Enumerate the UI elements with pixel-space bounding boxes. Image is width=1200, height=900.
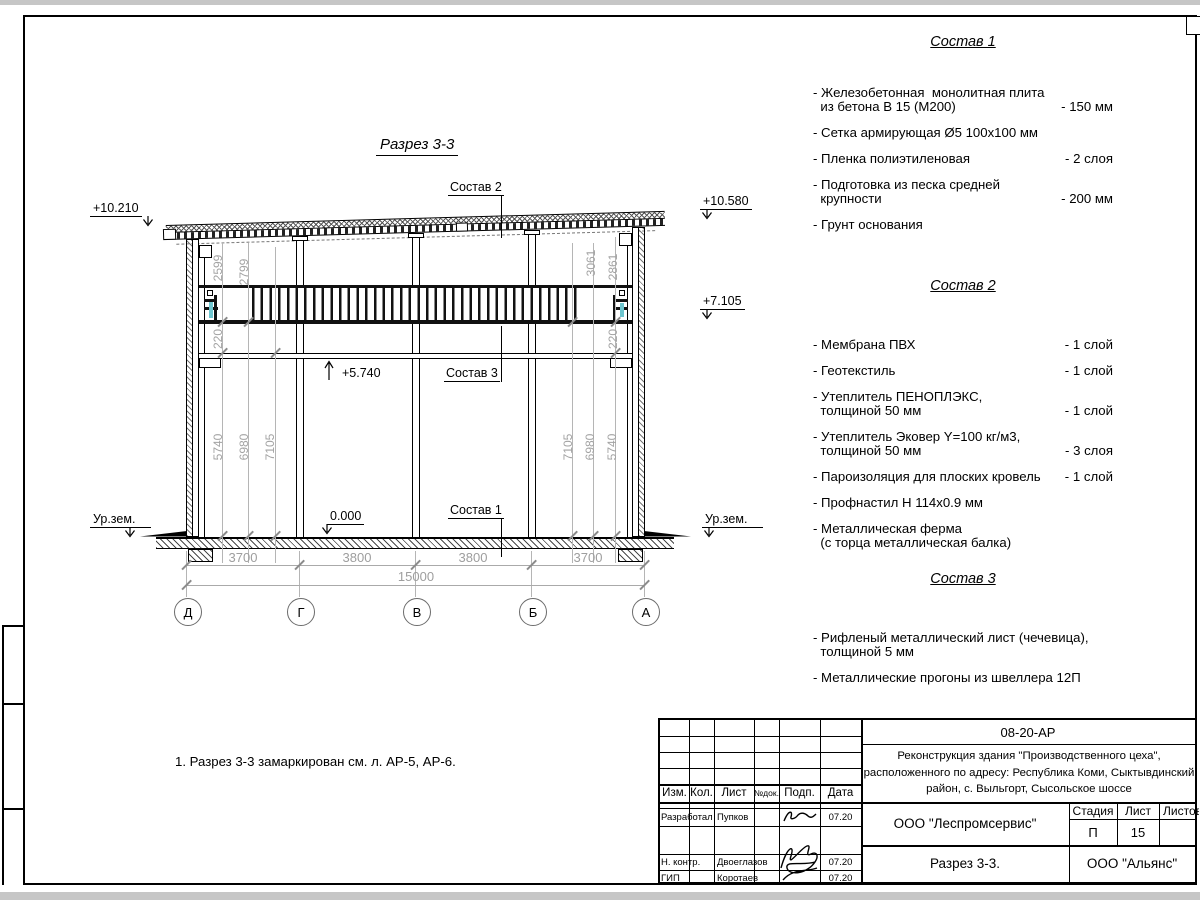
composition-items: - Мембрана ПВХ - 1 слой - Геотекстиль - … bbox=[813, 338, 1113, 550]
dim-line-vertical bbox=[572, 243, 573, 563]
truss-right-accent bbox=[620, 303, 624, 317]
composition-item-text: - Профнастил Н 114х0.9 мм bbox=[813, 496, 1107, 510]
composition-title: Состав 1 bbox=[813, 34, 1113, 50]
ground-wedge-right bbox=[643, 530, 691, 538]
tb-sheets-value bbox=[1159, 819, 1195, 845]
column-truss-to-floor bbox=[528, 324, 536, 353]
truss-right-bracket-box bbox=[619, 290, 625, 296]
composition-items: - Железобетонная монолитная плита из бет… bbox=[813, 86, 1113, 232]
ground-level-mark-left: Ур.зем. bbox=[90, 510, 151, 528]
filing-strip-line bbox=[2, 808, 23, 810]
composition-item: - Рифленый металлический лист (чечевица)… bbox=[813, 631, 1113, 659]
ground-slab bbox=[156, 537, 674, 549]
elevation-value: +10.210 bbox=[90, 201, 142, 217]
column-upper bbox=[528, 235, 536, 287]
composition-item-text: - Металлические прогоны из швеллера 12П bbox=[813, 671, 1107, 685]
composition-item-text: - Утеплитель ПЕНОПЛЭКС, толщиной 50 мм bbox=[813, 390, 1059, 418]
composition-item-qty: - 1 слой bbox=[1059, 470, 1113, 484]
v-dim-label: 7105 bbox=[263, 424, 277, 470]
roof-end-cap bbox=[163, 229, 176, 240]
right-column-face-line bbox=[627, 246, 628, 537]
axis-letter: В bbox=[413, 605, 422, 620]
composition-item: - Профнастил Н 114х0.9 мм bbox=[813, 496, 1113, 510]
v-dim-label: 6980 bbox=[237, 424, 251, 470]
leader-sostav-1: Состав 1 bbox=[448, 503, 504, 519]
ground-wedge-left bbox=[140, 530, 188, 538]
elevation-value: +5.740 bbox=[339, 366, 384, 381]
tb-sheet-title: Разрез 3-3. bbox=[861, 845, 1069, 882]
foundation-right bbox=[618, 549, 643, 562]
axis-bubble: А bbox=[632, 598, 660, 626]
tb-doc-number: 08-20-АР bbox=[861, 720, 1195, 744]
leader-sostav-2: Состав 2 bbox=[448, 180, 504, 196]
leader-line bbox=[501, 326, 502, 382]
composition-1: Состав 1 - Железобетонная монолитная пли… bbox=[813, 34, 1113, 244]
composition-item-qty: - 2 слоя bbox=[1059, 152, 1113, 166]
elevation-mark-zero: 0.000 bbox=[327, 507, 364, 525]
composition-2: Состав 2 - Мембрана ПВХ - 1 слой - Геоте… bbox=[813, 278, 1113, 562]
signature bbox=[781, 807, 819, 827]
elevation-mark-top-right: +10.580 bbox=[700, 192, 752, 210]
elevation-arrow-icon bbox=[703, 527, 715, 539]
tb-sheet-label: Лист bbox=[1117, 802, 1159, 819]
tb-date: 07.20 bbox=[820, 870, 861, 886]
column-truss-to-floor bbox=[412, 324, 420, 353]
extension-line bbox=[644, 551, 645, 597]
composition-item-qty: - 3 слоя bbox=[1059, 444, 1113, 458]
composition-item-text: - Рифленый металлический лист (чечевица)… bbox=[813, 631, 1107, 659]
h-dim-total-label: 15000 bbox=[386, 569, 446, 584]
tb-name: Коротаев bbox=[717, 870, 779, 886]
axis-bubble: Г bbox=[287, 598, 315, 626]
tb-role: Н. контр. bbox=[661, 854, 715, 870]
composition-item-qty: - 1 слой bbox=[1059, 364, 1113, 378]
composition-item-text: - Пленка полиэтиленовая bbox=[813, 152, 1059, 166]
composition-title: Состав 2 bbox=[813, 278, 1113, 294]
tb-col-kol: Кол. bbox=[689, 784, 714, 802]
column-lower bbox=[296, 359, 304, 537]
dim-line-vertical bbox=[593, 243, 594, 563]
right-wall bbox=[632, 227, 645, 537]
dim-line-h2 bbox=[186, 585, 645, 586]
ground-level-label: Ур.зем. bbox=[90, 512, 151, 528]
leader-line bbox=[501, 519, 502, 557]
composition-item: - Мембрана ПВХ - 1 слой bbox=[813, 338, 1113, 352]
tb-line bbox=[660, 826, 861, 827]
elevation-arrow-icon bbox=[701, 209, 713, 221]
composition-item-text: - Железобетонная монолитная плита из бет… bbox=[813, 86, 1055, 114]
tb-col-data: Дата bbox=[820, 784, 861, 802]
h-dim-label: 3800 bbox=[327, 550, 387, 565]
elevation-arrow-icon bbox=[701, 309, 713, 321]
tb-customer-org: ООО "Альянс" bbox=[1069, 845, 1195, 882]
page-edge-top bbox=[0, 0, 1200, 5]
tb-line bbox=[660, 736, 861, 737]
column-truss-to-floor bbox=[296, 324, 304, 353]
note-text: 1. Разрез 3-3 замаркирован см. л. АР-5, … bbox=[175, 754, 456, 769]
elevation-value: 0.000 bbox=[327, 509, 364, 525]
composition-item: - Подготовка из песка средней крупности … bbox=[813, 178, 1113, 206]
left-wall-core bbox=[192, 240, 198, 536]
composition-item: - Грунт основания bbox=[813, 218, 1113, 232]
composition-item-text: - Утеплитель Эковер Y=100 кг/м3, толщино… bbox=[813, 430, 1059, 458]
elevation-arrow-icon bbox=[142, 216, 154, 228]
column-lower bbox=[528, 359, 536, 537]
signature bbox=[777, 838, 821, 884]
h-dim-label: 3700 bbox=[213, 550, 273, 565]
dim-line-vertical bbox=[275, 247, 276, 563]
composition-3: Состав 3 - Рифленый металлический лист (… bbox=[813, 571, 1113, 697]
tb-name: Двоеглазов bbox=[717, 854, 779, 870]
elevation-mark-top-left: +10.210 bbox=[90, 199, 142, 217]
axis-bubble: Б bbox=[519, 598, 547, 626]
composition-item-text: - Подготовка из песка средней крупности bbox=[813, 178, 1055, 206]
h-dim-label: 3700 bbox=[558, 550, 618, 565]
tb-col-izm: Изм. bbox=[660, 784, 689, 802]
column-upper bbox=[412, 238, 420, 287]
composition-item-qty: - 1 слой bbox=[1059, 338, 1113, 352]
v-dim-label: 5740 bbox=[211, 424, 225, 470]
leader-sostav-3: Состав 3 bbox=[444, 366, 500, 382]
v-dim-label: 5740 bbox=[605, 424, 619, 470]
composition-item-text: - Геотекстиль bbox=[813, 364, 1059, 378]
composition-item: - Сетка армирующая Ø5 100х100 мм bbox=[813, 126, 1113, 140]
tb-line bbox=[660, 802, 861, 804]
elevation-value: +7.105 bbox=[700, 294, 745, 310]
filing-strip-line bbox=[2, 625, 23, 627]
column-lower bbox=[412, 359, 420, 537]
composition-item: - Утеплитель ПЕНОПЛЭКС, толщиной 50 мм -… bbox=[813, 390, 1113, 418]
composition-item: - Утеплитель Эковер Y=100 кг/м3, толщино… bbox=[813, 430, 1113, 458]
axis-bubble: Д bbox=[174, 598, 202, 626]
composition-items: - Рифленый металлический лист (чечевица)… bbox=[813, 631, 1113, 685]
elevation-value: +10.580 bbox=[700, 194, 752, 210]
right-wall-cap bbox=[619, 233, 632, 246]
composition-item: - Металлические прогоны из швеллера 12П bbox=[813, 671, 1113, 685]
tb-name: Пупков bbox=[717, 808, 777, 826]
tb-design-org: ООО "Леспромсервис" bbox=[861, 802, 1069, 845]
tb-line bbox=[660, 768, 861, 769]
dim-line-vertical bbox=[222, 243, 223, 563]
tb-sheets-label: Листов bbox=[1159, 802, 1199, 819]
composition-item: - Геотекстиль - 1 слой bbox=[813, 364, 1113, 378]
composition-item: - Пленка полиэтиленовая - 2 слоя bbox=[813, 152, 1113, 166]
tb-date: 07.20 bbox=[820, 854, 861, 870]
column-upper bbox=[296, 241, 304, 287]
composition-item-text: - Пароизоляция для плоских кровель bbox=[813, 470, 1059, 484]
v-dim-label: 220 bbox=[211, 316, 225, 362]
tb-stage-label: Стадия bbox=[1069, 802, 1117, 819]
h-dim-label: 3800 bbox=[443, 550, 503, 565]
drawing-sheet: { "sheet": { "drawing_title": "Разрез 3-… bbox=[0, 0, 1200, 900]
ground-level-mark-right: Ур.зем. bbox=[702, 510, 763, 528]
elevation-arrow-icon bbox=[124, 527, 136, 539]
ground-level-label: Ур.зем. bbox=[702, 512, 763, 528]
truss-right-bracket bbox=[616, 299, 628, 302]
extension-line bbox=[531, 551, 532, 597]
tb-line bbox=[660, 752, 861, 753]
filing-strip-line bbox=[2, 625, 4, 885]
extension-line bbox=[186, 551, 187, 597]
section-title: Разрез 3-3 bbox=[376, 136, 458, 156]
composition-item-qty: - 150 мм bbox=[1055, 100, 1113, 114]
v-dim-label: 2861 bbox=[606, 244, 620, 290]
tb-col-list: Лист bbox=[714, 784, 754, 802]
tb-role: Разработал bbox=[661, 808, 715, 826]
tb-col-ndoc: №док. bbox=[754, 784, 779, 802]
composition-item-qty: - 200 мм bbox=[1055, 192, 1113, 206]
v-dim-label: 7105 bbox=[561, 424, 575, 470]
composition-item-qty: - 1 слой bbox=[1059, 404, 1113, 418]
v-dim-label: 2599 bbox=[211, 245, 225, 291]
composition-title: Состав 3 bbox=[813, 571, 1113, 587]
composition-item-text: - Металлическая ферма (с торца металличе… bbox=[813, 522, 1107, 550]
composition-item: - Железобетонная монолитная плита из бет… bbox=[813, 86, 1113, 114]
composition-item-text: - Грунт основания bbox=[813, 218, 1107, 232]
composition-item: - Металлическая ферма (с торца металличе… bbox=[813, 522, 1113, 550]
elevation-mark-floor2: +5.740 bbox=[339, 364, 384, 382]
tb-date: 07.20 bbox=[820, 808, 861, 826]
composition-item: - Пароизоляция для плоских кровель - 1 с… bbox=[813, 470, 1113, 484]
extension-line bbox=[299, 551, 300, 597]
elevation-arrow-icon bbox=[321, 524, 333, 536]
elevation-mark-mid-right: +7.105 bbox=[700, 292, 745, 310]
v-dim-label: 2799 bbox=[237, 249, 251, 295]
tb-col-podp: Подп. bbox=[779, 784, 820, 802]
filing-strip-line bbox=[2, 703, 23, 705]
tb-role: ГИП bbox=[661, 870, 715, 886]
axis-letter: Д bbox=[184, 605, 193, 620]
tb-sheet-value: 15 bbox=[1117, 819, 1159, 845]
composition-item-text: - Сетка армирующая Ø5 100х100 мм bbox=[813, 126, 1107, 140]
composition-item-text: - Мембрана ПВХ bbox=[813, 338, 1059, 352]
v-dim-label: 6980 bbox=[583, 424, 597, 470]
elevation-up-arrow-icon bbox=[323, 360, 335, 380]
v-dim-label: 3061 bbox=[584, 240, 598, 286]
title-block: Изм. Кол. Лист №док. Подп. Дата Разработ… bbox=[658, 718, 1197, 884]
leader-line bbox=[501, 196, 502, 238]
v-dim-label: 220 bbox=[606, 316, 620, 362]
page-edge-bottom bbox=[0, 892, 1200, 900]
tb-project-name: Реконструкция здания "Производственного … bbox=[863, 745, 1195, 801]
copy-number-box bbox=[1186, 16, 1200, 35]
roof-detail-box bbox=[456, 222, 468, 231]
axis-bubble: В bbox=[403, 598, 431, 626]
axis-letter: А bbox=[642, 605, 651, 620]
truss-verticals bbox=[252, 288, 578, 320]
right-wall-insulation bbox=[639, 228, 644, 536]
axis-letter: Б bbox=[529, 605, 538, 620]
tb-stage-value: П bbox=[1069, 819, 1117, 845]
left-wall bbox=[186, 239, 199, 537]
axis-letter: Г bbox=[297, 605, 304, 620]
